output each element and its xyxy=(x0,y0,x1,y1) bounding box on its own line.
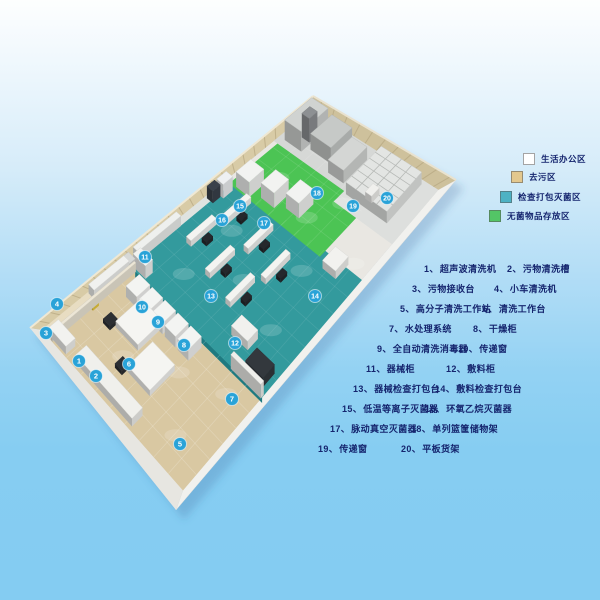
svg-text:20: 20 xyxy=(383,196,391,203)
equipment-list-item-13: 13、器械检查打包台 xyxy=(353,382,440,395)
marker-7: 7 xyxy=(226,393,239,406)
equipment-name: 清洗工作台 xyxy=(499,304,546,314)
equipment-number: 18、 xyxy=(411,424,431,434)
equipment-name: 超声波清洗机 xyxy=(440,264,496,274)
marker-18: 18 xyxy=(311,187,324,200)
svg-text:19: 19 xyxy=(349,204,357,211)
marker-16: 16 xyxy=(216,214,229,227)
legend-item-3: 检查打包灭菌区 xyxy=(500,191,581,203)
equipment-list-item-12: 12、敷料柜 xyxy=(446,362,495,375)
svg-text:13: 13 xyxy=(207,294,215,301)
legend-label: 生活办公区 xyxy=(541,153,586,165)
floorplan-3d: 1234567891011121314151617181920 xyxy=(0,0,600,600)
svg-text:15: 15 xyxy=(236,204,244,211)
equipment-name: 污物清洗槽 xyxy=(523,264,570,274)
equipment-list-item-7: 7、水处理系统 xyxy=(389,322,452,335)
svg-text:12: 12 xyxy=(231,341,239,348)
legend-label: 无菌物品存放区 xyxy=(507,210,570,222)
marker-11: 11 xyxy=(139,251,152,264)
legend-item-1: 生活办公区 xyxy=(523,153,586,165)
svg-text:17: 17 xyxy=(260,221,268,228)
svg-text:1: 1 xyxy=(77,357,81,366)
light-pool xyxy=(260,324,282,336)
equipment-name: 水处理系统 xyxy=(405,324,452,334)
svg-text:14: 14 xyxy=(311,294,319,301)
equipment-list-item-5: 5、高分子清洗工作站 xyxy=(400,302,491,315)
equipment-list-item-2: 2、污物清洗槽 xyxy=(507,262,570,275)
equipment-name: 单列篮筐储物架 xyxy=(432,424,498,434)
equipment-list-item-18: 18、单列篮筐储物架 xyxy=(411,422,498,435)
marker-10: 10 xyxy=(136,301,149,314)
equipment-number: 6、 xyxy=(483,304,498,314)
light-pool xyxy=(173,268,195,280)
marker-14: 14 xyxy=(309,290,322,303)
equipment-name: 平板货架 xyxy=(422,444,460,454)
equipment-name: 干燥柜 xyxy=(489,324,517,334)
equipment-number: 14、 xyxy=(435,384,455,394)
equipment-name: 污物接收台 xyxy=(428,284,475,294)
equipment-name: 器械检查打包台 xyxy=(374,384,440,394)
equipment-number: 11、 xyxy=(366,364,386,374)
svg-text:7: 7 xyxy=(230,395,234,404)
equipment-number: 2、 xyxy=(507,264,522,274)
equipment-list-item-3: 3、污物接收台 xyxy=(412,282,475,295)
svg-text:10: 10 xyxy=(138,305,146,312)
legend-item-2: 去污区 xyxy=(511,171,556,183)
equipment-number: 4、 xyxy=(494,284,509,294)
equipment-list-item-9: 9、全自动清洗消毒器 xyxy=(377,342,468,355)
marker-15: 15 xyxy=(234,200,247,213)
equipment-list-item-10: 10、传递窗 xyxy=(458,342,507,355)
equipment-number: 17、 xyxy=(330,424,350,434)
equipment-list-item-6: 6、清洗工作台 xyxy=(483,302,546,315)
equipment-number: 10、 xyxy=(458,344,478,354)
equipment-list-item-1: 1、超声波清洗机 xyxy=(424,262,496,275)
equipment-name: 小车清洗机 xyxy=(510,284,557,294)
equipment-number: 13、 xyxy=(353,384,373,394)
equipment-number: 1、 xyxy=(424,264,439,274)
legend-swatch xyxy=(500,191,512,203)
light-pool xyxy=(291,265,313,277)
equipment-number: 12、 xyxy=(446,364,466,374)
equipment-number: 19、 xyxy=(318,444,338,454)
marker-4: 4 xyxy=(51,298,64,311)
svg-text:8: 8 xyxy=(182,341,186,350)
equipment-number: 5、 xyxy=(400,304,415,314)
equipment-list-item-14: 14、敷料检查打包台 xyxy=(435,382,522,395)
equipment-name: 脉动真空灭菌器 xyxy=(351,424,417,434)
equipment-number: 9、 xyxy=(377,344,392,354)
svg-text:11: 11 xyxy=(141,255,149,262)
legend-swatch xyxy=(489,210,501,222)
equipment-list-item-17: 17、脉动真空灭菌器 xyxy=(330,422,417,435)
equipment-list-item-15: 15、低温等离子灭菌器 xyxy=(342,402,438,415)
svg-text:6: 6 xyxy=(127,360,131,369)
marker-19: 19 xyxy=(347,200,360,213)
svg-text:5: 5 xyxy=(178,440,182,449)
svg-text:3: 3 xyxy=(44,329,48,338)
equipment-number: 16、 xyxy=(425,404,445,414)
marker-20: 20 xyxy=(381,192,394,205)
marker-13: 13 xyxy=(205,290,218,303)
svg-text:9: 9 xyxy=(156,318,160,327)
svg-text:16: 16 xyxy=(218,218,226,225)
marker-6: 6 xyxy=(123,358,136,371)
equipment-list-item-4: 4、小车清洗机 xyxy=(494,282,557,295)
equipment-name: 环氧乙烷灭菌器 xyxy=(446,404,512,414)
marker-12: 12 xyxy=(229,337,242,350)
equipment-list-item-19: 19、传递窗 xyxy=(318,442,367,455)
equipment-name: 敷料柜 xyxy=(467,364,495,374)
equipment-number: 3、 xyxy=(412,284,427,294)
equipment-number: 20、 xyxy=(401,444,421,454)
svg-text:18: 18 xyxy=(313,191,321,198)
legend-item-4: 无菌物品存放区 xyxy=(489,210,570,222)
equipment-list-item-16: 16、环氧乙烷灭菌器 xyxy=(425,402,512,415)
marker-1: 1 xyxy=(73,355,86,368)
equipment-number: 8、 xyxy=(473,324,488,334)
equipment-name: 传递窗 xyxy=(479,344,507,354)
marker-2: 2 xyxy=(90,370,103,383)
equipment-number: 15、 xyxy=(342,404,362,414)
equipment-list-item-20: 20、平板货架 xyxy=(401,442,460,455)
marker-8: 8 xyxy=(178,339,191,352)
legend-label: 检查打包灭菌区 xyxy=(518,191,581,203)
equipment-list-item-8: 8、干燥柜 xyxy=(473,322,517,335)
legend-swatch xyxy=(523,153,535,165)
marker-17: 17 xyxy=(258,217,271,230)
marker-5: 5 xyxy=(174,438,187,451)
marker-3: 3 xyxy=(40,327,53,340)
floorplan-infographic: 1234567891011121314151617181920 生活办公区去污区… xyxy=(0,0,600,600)
equipment-name: 敷料检查打包台 xyxy=(456,384,522,394)
marker-9: 9 xyxy=(152,316,165,329)
equipment-name: 高分子清洗工作站 xyxy=(416,304,491,314)
legend-label: 去污区 xyxy=(529,171,556,183)
equipment-name: 器械柜 xyxy=(387,364,415,374)
svg-text:2: 2 xyxy=(94,372,98,381)
equipment-list-item-11: 11、器械柜 xyxy=(366,362,415,375)
equipment-number: 7、 xyxy=(389,324,404,334)
equipment-name: 传递窗 xyxy=(339,444,367,454)
equipment-name: 全自动清洗消毒器 xyxy=(393,344,468,354)
legend-swatch xyxy=(511,171,523,183)
